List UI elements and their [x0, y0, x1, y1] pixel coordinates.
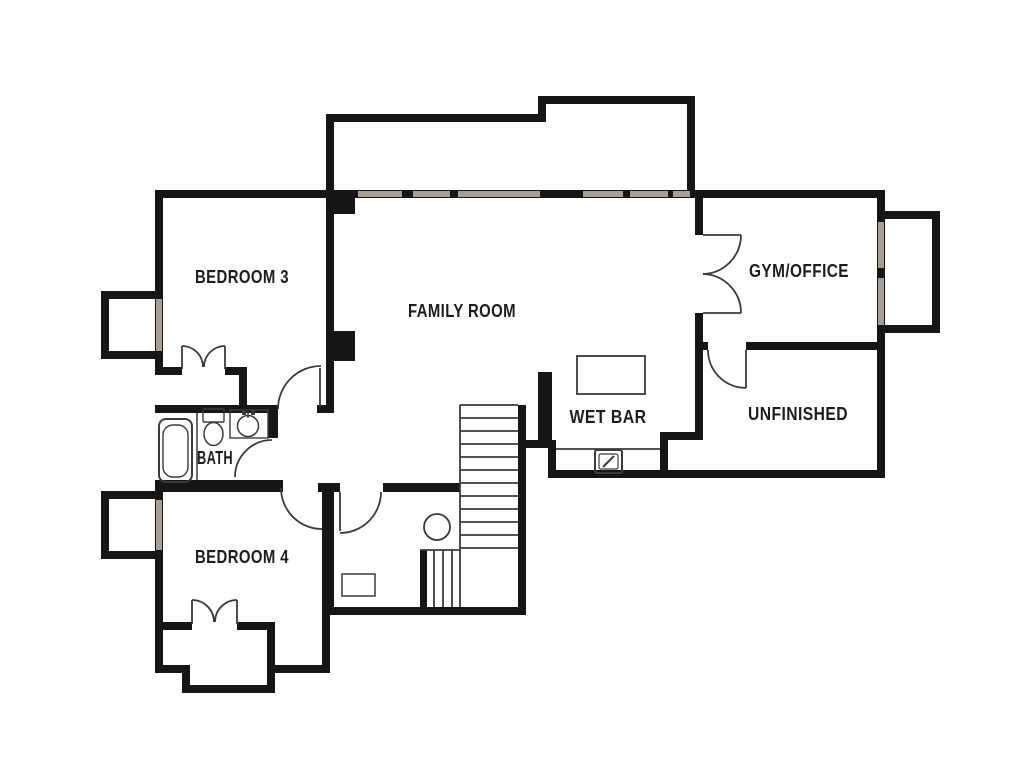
- gym-bay-top-wall: [885, 211, 940, 219]
- bath-faucet-knob: [242, 410, 246, 415]
- bedroom4-south-wall-east: [237, 622, 275, 630]
- room-label-wet-bar: WET BAR: [570, 407, 647, 427]
- floor-plan-page: BEDROOM 3FAMILY ROOMGYM/OFFICEUNFINISHED…: [0, 0, 1024, 757]
- bedroom3-south-wall-west: [155, 367, 182, 375]
- room-label-family-room: FAMILY ROOM: [408, 301, 516, 321]
- stair-top-stub-wall: [538, 372, 552, 448]
- room-label-bath: BATH: [197, 448, 233, 468]
- bedroom4-bay-window: [156, 500, 162, 550]
- bedroom3-east-wall: [326, 198, 334, 413]
- laundry-north-wall: [383, 483, 460, 492]
- alcove-south-wall: [267, 665, 330, 673]
- lower-stair-west-wall: [420, 550, 427, 607]
- deck-left-top-wall: [326, 114, 546, 122]
- bed3-bay-bottom-wall: [101, 351, 163, 359]
- gym-south-wall-west: [695, 342, 708, 350]
- room-label-unfinished: UNFINISHED: [748, 404, 848, 424]
- family-east-wall: [695, 350, 703, 440]
- gym-bay-window-lower: [878, 278, 884, 325]
- family-pilaster-2: [334, 331, 355, 361]
- bedroom3-north-wall: [155, 190, 335, 198]
- gym-north-wall: [695, 190, 885, 198]
- deck-right-east-wall: [687, 96, 695, 198]
- plan-background: [0, 0, 1024, 757]
- bed3-door-jamb: [317, 405, 326, 413]
- stair-south-wall: [322, 607, 526, 615]
- gym-bay-east-wall: [932, 211, 940, 333]
- family-window-6: [673, 191, 690, 197]
- deck-left-west-wall: [326, 114, 334, 198]
- bed3-bay-west-wall: [101, 291, 109, 359]
- bedroom4-east-lower-wall: [322, 607, 330, 673]
- gym-bay-bottom-wall: [885, 325, 940, 333]
- closet4-west-step-wall: [155, 665, 190, 673]
- room-label-bedroom-3: BEDROOM 3: [195, 267, 289, 287]
- bed4-bay-top-wall: [101, 491, 163, 499]
- family-window-2: [413, 191, 450, 197]
- closet4-east-wall: [267, 622, 275, 693]
- bed3-bay-top-wall: [101, 291, 163, 299]
- bed4-bay-west-wall: [101, 491, 109, 559]
- family-window-3: [458, 191, 540, 197]
- family-window-1: [358, 191, 402, 197]
- closet4-bottom-wall: [182, 685, 275, 693]
- room-label-gym-office: GYM/OFFICE: [749, 261, 849, 281]
- family-window-4: [583, 191, 623, 197]
- deck-right-top-wall: [538, 96, 695, 104]
- bedroom4-south-wall-west: [155, 622, 192, 630]
- room-label-bedroom-4: BEDROOM 4: [195, 547, 289, 567]
- bedroom3-bay-window: [156, 299, 162, 351]
- bed4-bay-bottom-wall: [101, 551, 163, 559]
- family-pilaster-1: [334, 198, 355, 214]
- gym-bay-window-upper: [878, 222, 884, 268]
- gym-south-wall-east: [746, 342, 885, 350]
- floor-plan-drawing: BEDROOM 3FAMILY ROOMGYM/OFFICEUNFINISHED…: [0, 0, 1024, 757]
- family-window-5: [630, 191, 668, 197]
- bath-east-wall: [268, 405, 278, 438]
- bath-faucet-knob: [251, 410, 255, 415]
- stair-east-wall: [518, 405, 526, 615]
- gym-west-wall-upper: [695, 198, 703, 235]
- bedroom4-east-wall: [322, 483, 334, 615]
